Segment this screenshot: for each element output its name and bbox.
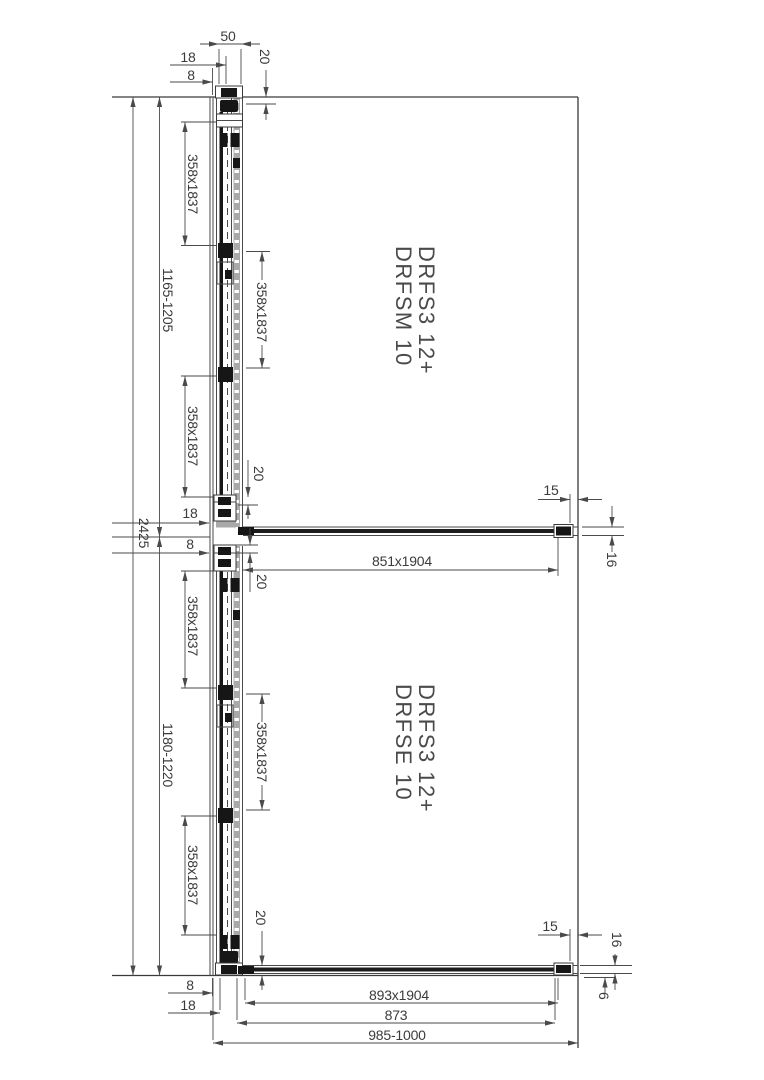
panel-connector xyxy=(218,367,233,382)
model-upper-line1: DRFS3 12+ xyxy=(414,246,439,375)
door-stop xyxy=(233,158,240,168)
dim-rail-width: 50 xyxy=(220,28,236,44)
model-lower-line2: DRFSE 10 xyxy=(391,684,416,801)
dim-entry-range: 985-1000 xyxy=(368,1027,426,1043)
dim-glass-panel-u3: 358x1837 xyxy=(185,406,201,466)
dim-wall-gap-btm: 15 xyxy=(542,918,558,934)
glass-panel-edge xyxy=(243,968,556,972)
dim-bottom-inset-lower: 20 xyxy=(253,910,269,926)
panel-connector xyxy=(218,685,233,700)
dim-overall-height: 2425 xyxy=(136,518,152,549)
glass-panel-edge xyxy=(243,529,556,533)
dim-glass-panel-l2: 358x1837 xyxy=(254,722,270,782)
dim-bottom-inset-upper: 20 xyxy=(251,466,267,482)
dim-lower-height-range: 1180-1220 xyxy=(160,723,176,788)
model-lower-line1: DRFS3 12+ xyxy=(414,684,439,813)
dim-panel-offset-btm: 16 xyxy=(609,932,625,948)
paper-background xyxy=(0,0,764,1080)
dim-ceiling-inset: 20 xyxy=(257,49,273,65)
dim-glass-to-wall-top: 18 xyxy=(180,49,196,65)
panel-connector xyxy=(218,243,233,258)
door-stop xyxy=(233,610,240,620)
shower-enclosure-plan-drawing: 50 18 8 20 2425 1165-1205 1180-1220 358x… xyxy=(0,0,764,1080)
dim-inner-width: 873 xyxy=(385,1007,408,1023)
dim-glass-panel-u1: 358x1837 xyxy=(185,154,201,214)
dim-panel-offset-mid: 16 xyxy=(604,552,620,568)
dim-base-offset-18: 18 xyxy=(180,997,196,1013)
dim-floor-gap: 6 xyxy=(596,992,612,1000)
dim-profile-offset-top: 8 xyxy=(187,67,195,83)
dim-side-panel-upper: 851x1904 xyxy=(372,553,432,569)
roller-carriage xyxy=(220,951,238,963)
dim-top-inset-lower: 20 xyxy=(254,574,270,590)
roller-carriage xyxy=(220,100,238,112)
dim-profile-offset-mid: 8 xyxy=(186,536,194,552)
dim-side-panel-lower: 893x1904 xyxy=(369,987,429,1003)
dim-base-offset-8: 8 xyxy=(186,977,194,993)
dim-glass-to-wall-mid: 18 xyxy=(182,505,198,521)
dim-glass-panel-u2: 358x1837 xyxy=(254,282,270,342)
dim-wall-gap-mid: 15 xyxy=(543,482,559,498)
glass-rail-connector xyxy=(238,966,254,974)
glass-rail-connector xyxy=(238,527,254,535)
panel-connector xyxy=(218,808,233,823)
technical-drawing-page: 50 18 8 20 2425 1165-1205 1180-1220 358x… xyxy=(0,0,764,1080)
dim-glass-panel-l3: 358x1837 xyxy=(185,845,201,905)
dim-glass-panel-l1: 358x1837 xyxy=(185,596,201,656)
model-upper-line2: DRFSM 10 xyxy=(391,246,416,367)
dim-upper-height-range: 1165-1205 xyxy=(160,268,176,333)
